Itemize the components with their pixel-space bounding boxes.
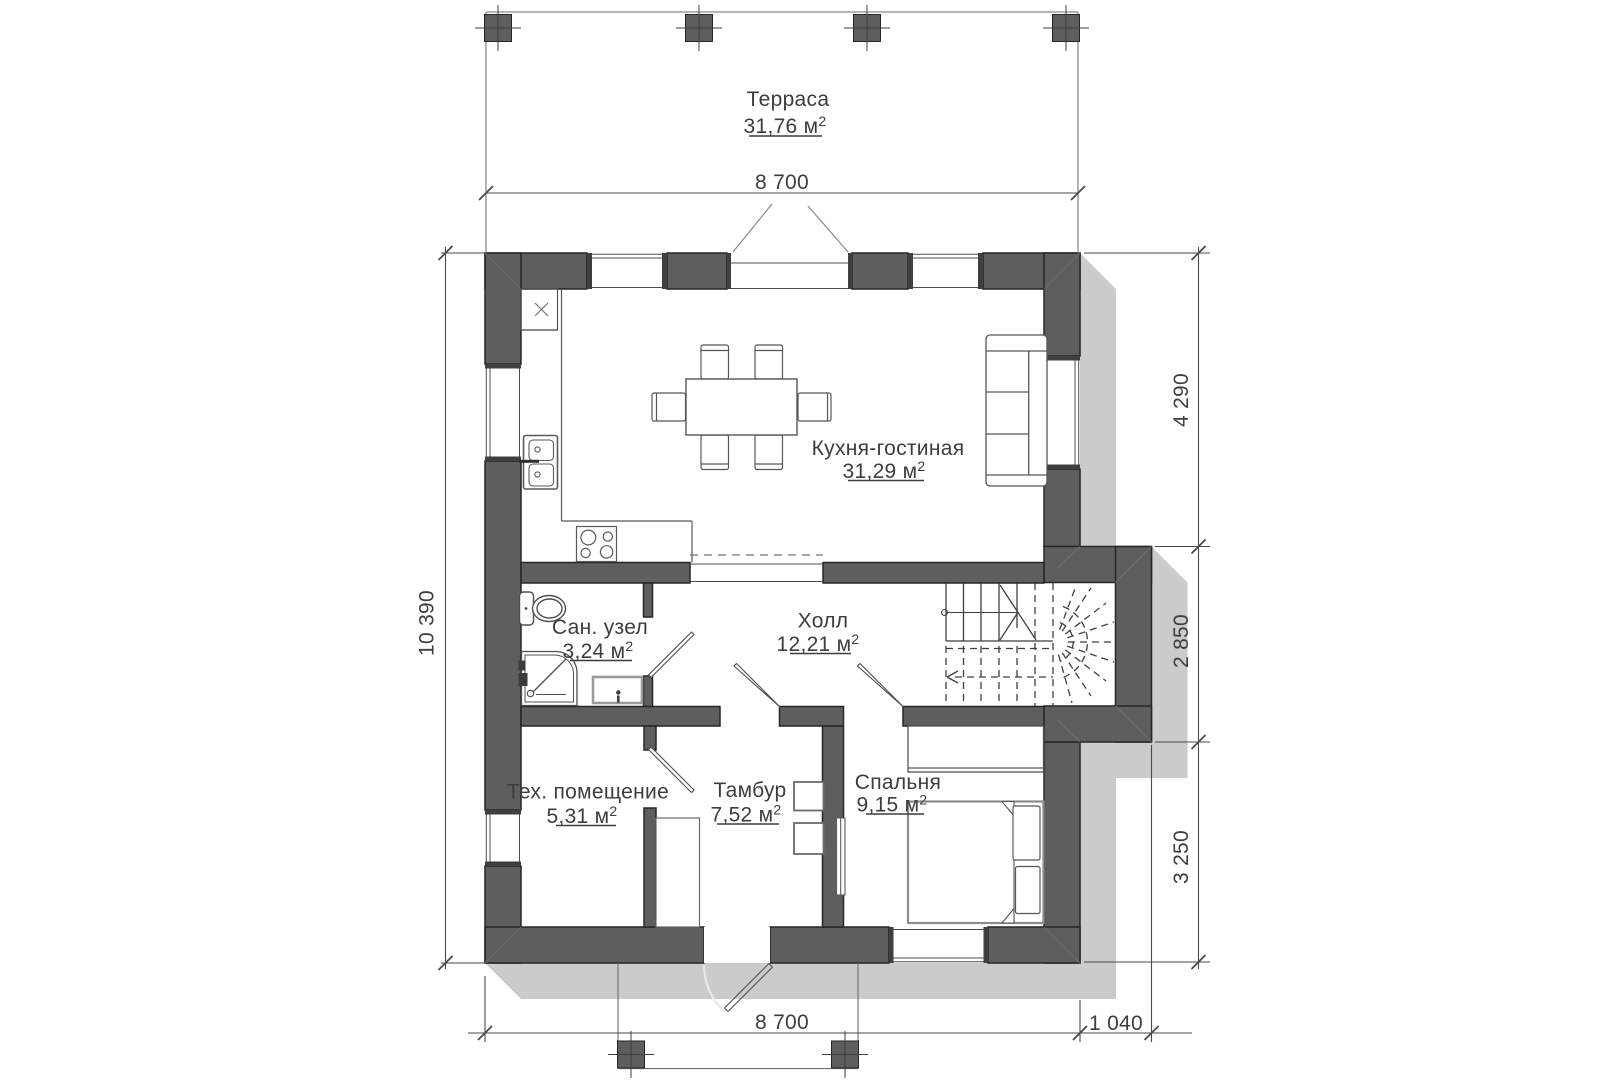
svg-text:31,29 м2: 31,29 м2	[842, 458, 925, 483]
svg-text:Терраса: Терраса	[747, 88, 830, 111]
svg-text:Спальня: Спальня	[855, 771, 941, 794]
svg-text:7,52 м2: 7,52 м2	[710, 802, 781, 827]
svg-text:8 700: 8 700	[755, 1011, 809, 1034]
svg-text:31,76 м2: 31,76 м2	[743, 113, 826, 138]
svg-text:9,15 м2: 9,15 м2	[856, 792, 927, 817]
svg-text:Кухня-гостиная: Кухня-гостиная	[812, 437, 965, 460]
svg-text:3 250: 3 250	[1170, 830, 1193, 884]
svg-text:Тамбур: Тамбур	[713, 779, 786, 802]
svg-text:10 390: 10 390	[416, 590, 439, 656]
svg-text:Тех. помещение: Тех. помещение	[507, 781, 669, 804]
svg-text:3,24 м2: 3,24 м2	[562, 638, 633, 663]
svg-text:12,21 м2: 12,21 м2	[776, 631, 859, 656]
svg-text:Холл: Холл	[798, 610, 849, 633]
svg-text:5,31 м2: 5,31 м2	[546, 803, 617, 828]
svg-text:8 700: 8 700	[755, 171, 809, 194]
svg-text:Сан. узел: Сан. узел	[552, 616, 648, 639]
svg-text:4 290: 4 290	[1170, 373, 1193, 427]
svg-text:2 850: 2 850	[1170, 614, 1193, 668]
svg-text:1 040: 1 040	[1089, 1012, 1143, 1035]
